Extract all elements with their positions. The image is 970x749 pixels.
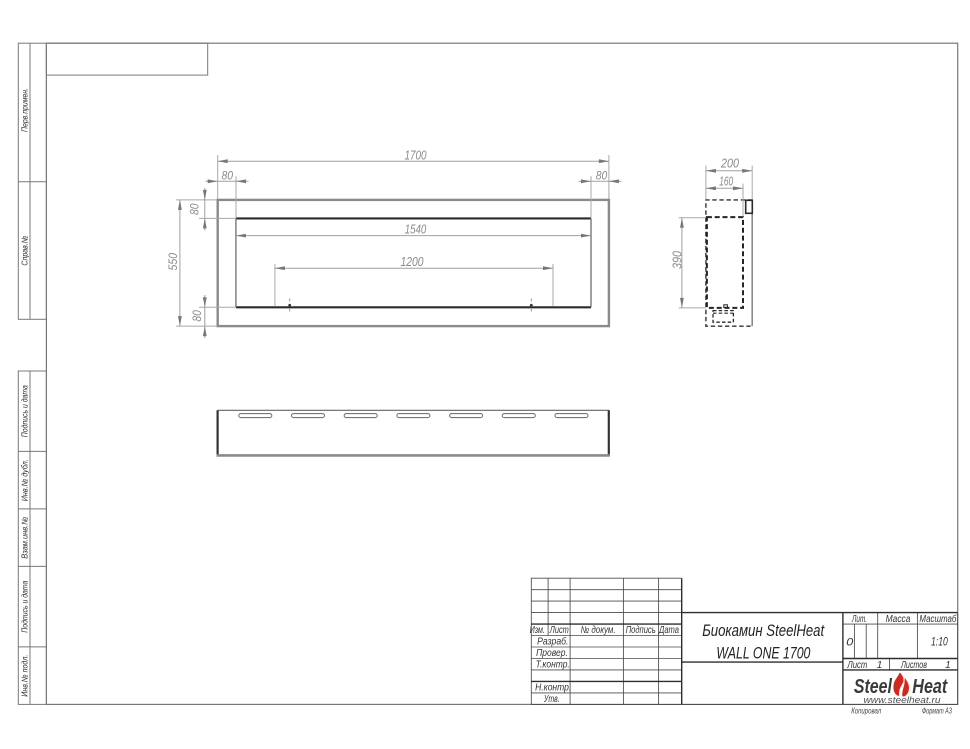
svg-text:Биокамин SteelHeat: Биокамин SteelHeat: [702, 621, 825, 640]
svg-text:1200: 1200: [401, 254, 425, 269]
svg-text:Дата: Дата: [658, 625, 679, 636]
svg-text:1540: 1540: [405, 221, 427, 236]
svg-text:1:10: 1:10: [931, 635, 948, 649]
svg-text:160: 160: [719, 173, 733, 188]
svg-text:Изм.: Изм.: [530, 625, 545, 636]
svg-text:550: 550: [166, 253, 180, 271]
svg-text:Провер.: Провер.: [536, 648, 568, 659]
svg-text:Подпись и дата: Подпись и дата: [20, 580, 30, 632]
svg-text:WALL ONE 1700: WALL ONE 1700: [716, 643, 810, 662]
svg-text:200: 200: [720, 156, 739, 171]
svg-text:Лист: Лист: [549, 625, 569, 636]
svg-text:Листов: Листов: [900, 660, 927, 671]
svg-text:Копировал: Копировал: [851, 706, 881, 716]
svg-text:Взам.инв.№: Взам.инв.№: [20, 517, 30, 559]
svg-text:Н.контр.: Н.контр.: [535, 682, 571, 693]
svg-text:Т.контр.: Т.контр.: [536, 660, 570, 671]
svg-text:Масса: Масса: [886, 614, 911, 625]
svg-text:№ докум.: № докум.: [581, 625, 616, 636]
svg-text:Масштаб: Масштаб: [919, 614, 956, 625]
svg-text:Утв.: Утв.: [543, 694, 559, 705]
svg-text:80: 80: [222, 168, 234, 182]
svg-text:80: 80: [596, 168, 608, 182]
svg-text:Перв.примен.: Перв.примен.: [20, 88, 30, 132]
svg-text:80: 80: [188, 203, 202, 215]
svg-text:Инв.№ подл.: Инв.№ подл.: [20, 655, 30, 697]
svg-text:Подпись: Подпись: [626, 625, 656, 636]
svg-text:www.steelheat.ru: www.steelheat.ru: [864, 695, 942, 706]
svg-text:390: 390: [669, 250, 684, 269]
svg-text:Лист: Лист: [847, 660, 868, 671]
svg-text:1700: 1700: [405, 148, 428, 163]
svg-text:80: 80: [190, 310, 204, 322]
svg-text:Инв.№ дубл.: Инв.№ дубл.: [20, 459, 30, 501]
svg-text:1: 1: [877, 660, 883, 671]
svg-text:0: 0: [846, 636, 854, 648]
svg-text:Формат А3: Формат А3: [922, 706, 952, 716]
svg-text:Справ.№: Справ.№: [20, 236, 30, 266]
svg-text:Лит.: Лит.: [851, 614, 867, 625]
svg-text:Подпись и дата: Подпись и дата: [20, 385, 30, 437]
svg-text:Разраб.: Разраб.: [537, 636, 568, 648]
svg-text:1: 1: [945, 660, 951, 671]
